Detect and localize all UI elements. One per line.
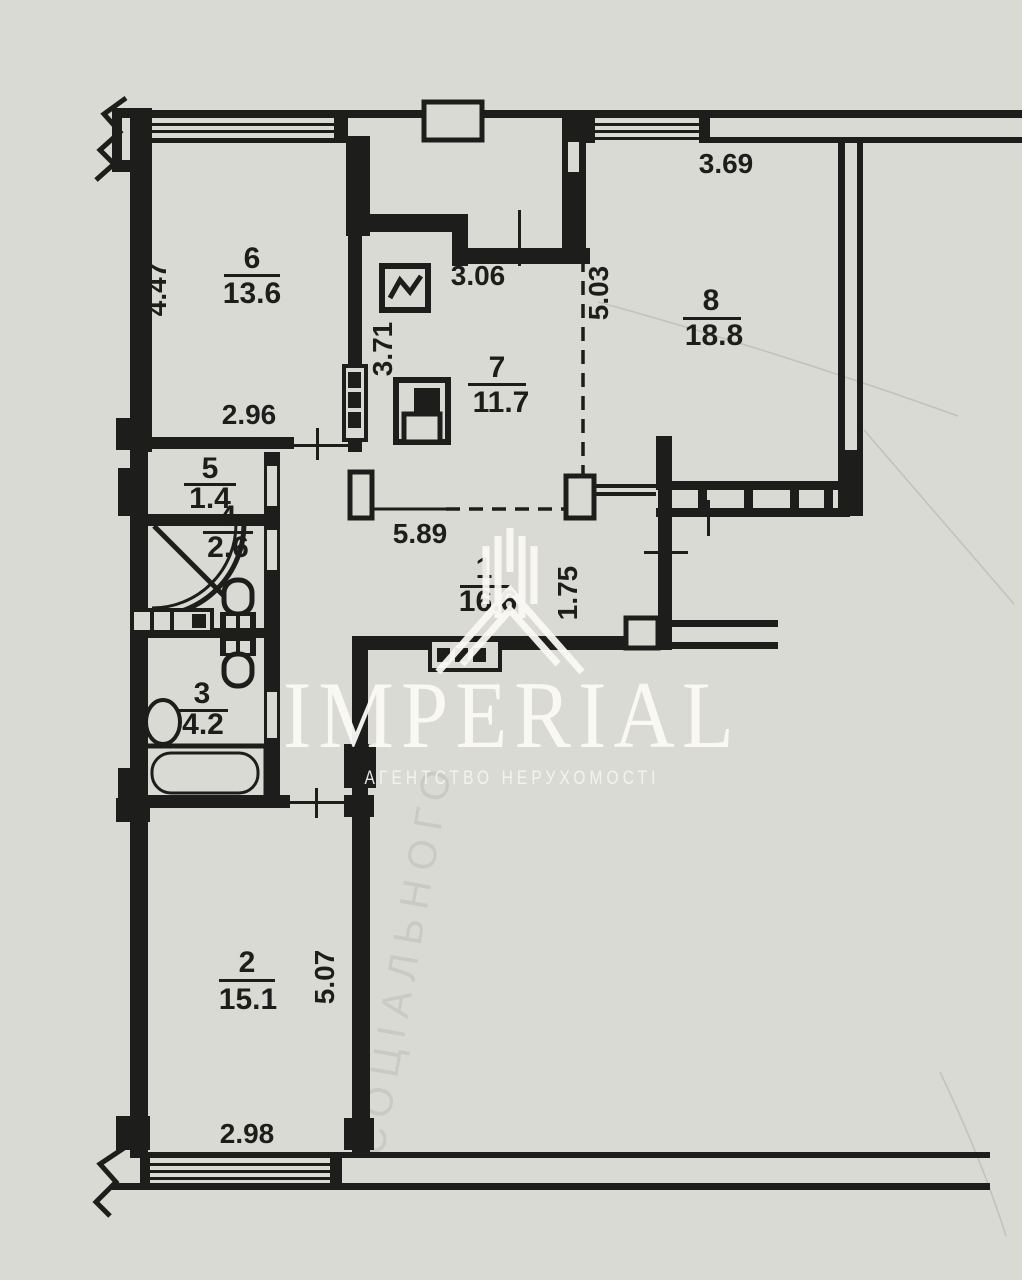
toilet-icon [220,580,256,632]
dim-room8-left: 5.03 [583,266,614,321]
svg-text:18.8: 18.8 [685,319,743,352]
svg-text:6: 6 [244,242,261,275]
svg-text:4.2: 4.2 [182,708,224,741]
dim-room6-width: 2.96 [222,399,277,430]
svg-text:13.6: 13.6 [223,277,281,310]
washbasin-icon [146,700,180,744]
svg-text:2: 2 [239,946,256,979]
svg-text:7: 7 [489,351,506,384]
dim-room8-top: 3.69 [699,148,754,179]
dim-room7-bottom: 5.89 [393,518,448,549]
dim-room7-left: 3.71 [367,322,398,377]
electric-panel-icon [382,266,428,310]
vent-shaft-icon [344,366,366,440]
dim-hall-width: 1.75 [552,566,583,621]
dim-room2-width: 2.98 [220,1118,275,1149]
svg-text:11.7: 11.7 [473,386,530,419]
floor-plan: СОЦІАЛЬНОГО [0,0,1022,1280]
svg-text:2.6: 2.6 [207,531,249,564]
dim-room6-height: 4.47 [141,262,172,317]
svg-text:15.1: 15.1 [219,983,277,1016]
svg-text:8: 8 [703,284,720,317]
sink-counter-icon [132,610,212,632]
stove-icon [396,380,448,442]
svg-text:5: 5 [202,452,219,485]
dim-room7-top: 3.06 [451,260,506,291]
svg-text:4: 4 [220,500,237,533]
svg-text:3: 3 [194,677,211,710]
toilet-icon [220,638,256,686]
floor-plan-page: СОЦІАЛЬНОГО [0,0,1022,1280]
watermark-brand: IMPERIAL [283,662,741,768]
watermark-tagline: АГЕНТСТВО НЕРУХОМОСТІ [365,768,660,789]
vent-box-icon [424,102,482,140]
dim-room2-height: 5.07 [309,950,340,1005]
